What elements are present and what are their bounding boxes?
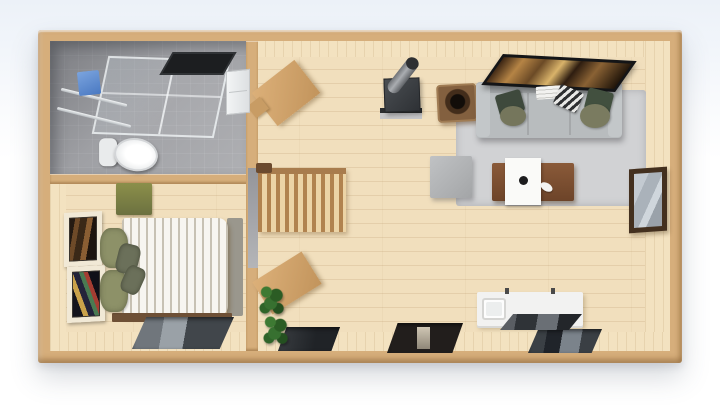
sink (482, 298, 506, 320)
floor-window-3 (387, 323, 463, 353)
sofa-armrest-left (476, 83, 490, 137)
sofa-cushion-round (580, 104, 610, 128)
floor-window-bedroom (132, 317, 234, 349)
ottoman (430, 156, 472, 198)
wall-face-top (256, 41, 646, 57)
stairwell-opening (248, 168, 258, 268)
sofa-cushion-gap (527, 93, 529, 135)
potted-plant (258, 284, 286, 316)
window-glass (634, 172, 662, 228)
bathroom-cabinet (226, 69, 250, 116)
toilet-bowl (112, 135, 160, 174)
blue-towel (77, 70, 101, 96)
side-wall-window (629, 167, 667, 234)
glass-panel (500, 314, 582, 330)
stair-newel-post (256, 163, 272, 173)
staircase (258, 168, 346, 232)
sofa-cushion-round (500, 106, 526, 126)
headboard-bench (116, 183, 152, 215)
floor-plan-render (0, 0, 720, 405)
log-side-table (436, 83, 478, 123)
coffee-mug (519, 176, 528, 185)
floor-window-4 (528, 329, 602, 353)
wall-art-upper (64, 211, 102, 267)
tv-screen (486, 57, 631, 89)
bed-footboard (227, 218, 243, 316)
potted-plant (262, 314, 290, 346)
